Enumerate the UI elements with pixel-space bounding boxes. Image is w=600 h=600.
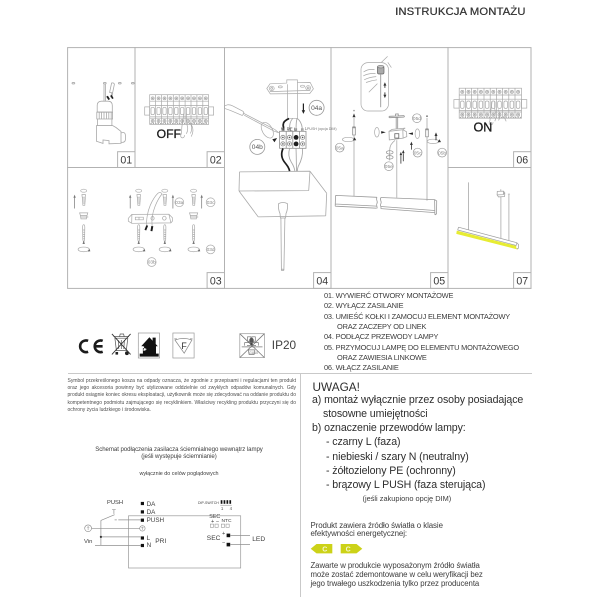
svg-text:PUSH (opcja DIM): PUSH (opcja DIM) bbox=[307, 127, 337, 131]
svg-text:C: C bbox=[346, 547, 351, 554]
svg-text:PE: PE bbox=[287, 126, 293, 131]
svg-text:05d: 05d bbox=[413, 116, 421, 122]
svg-text:GU10: GU10 bbox=[249, 351, 258, 355]
svg-text:ON: ON bbox=[474, 120, 493, 134]
svg-text:04: 04 bbox=[316, 276, 328, 288]
svg-text:05e: 05e bbox=[385, 164, 393, 170]
svg-text:04a: 04a bbox=[311, 105, 322, 112]
svg-text:03b: 03b bbox=[148, 260, 156, 266]
svg-text:L: L bbox=[294, 126, 297, 131]
svg-text:05b: 05b bbox=[438, 150, 446, 156]
svg-text:01: 01 bbox=[120, 155, 132, 167]
svg-text:03c: 03c bbox=[207, 200, 215, 206]
svg-text:05a: 05a bbox=[336, 145, 344, 151]
svg-text:05c: 05c bbox=[414, 150, 422, 156]
svg-text:04b: 04b bbox=[252, 144, 263, 151]
svg-text:C: C bbox=[322, 547, 327, 554]
svg-text:03a: 03a bbox=[175, 200, 183, 206]
svg-text:OFF: OFF bbox=[157, 127, 181, 141]
svg-text:03d: 03d bbox=[207, 247, 215, 253]
svg-text:N: N bbox=[281, 126, 284, 131]
svg-text:1: 1 bbox=[221, 506, 224, 511]
svg-text:02: 02 bbox=[210, 155, 222, 167]
svg-text:F: F bbox=[181, 341, 187, 351]
svg-text:4: 4 bbox=[230, 506, 233, 511]
svg-text:05: 05 bbox=[433, 276, 445, 288]
svg-text:03: 03 bbox=[210, 276, 222, 288]
svg-text:06: 06 bbox=[516, 155, 528, 167]
svg-text:07: 07 bbox=[516, 276, 528, 288]
